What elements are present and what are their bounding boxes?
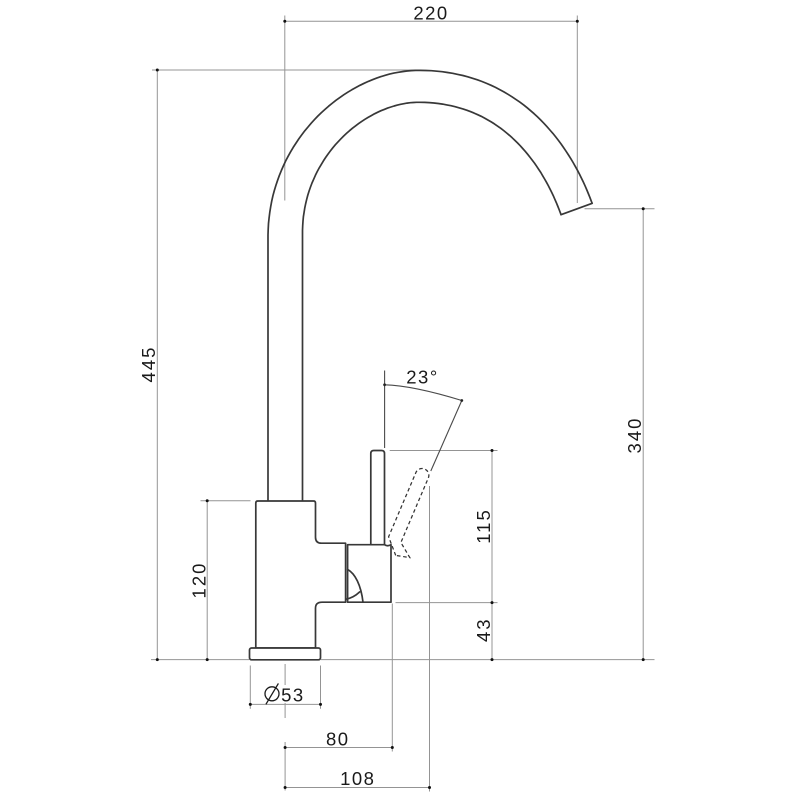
svg-text:445: 445 [138,346,159,383]
svg-text:108: 108 [340,768,375,789]
svg-text:220: 220 [413,3,448,24]
svg-text:23°: 23° [406,366,438,387]
svg-text:43: 43 [473,617,494,642]
svg-text:115: 115 [473,508,494,544]
svg-text:120: 120 [188,562,209,599]
svg-text:80: 80 [326,728,350,749]
svg-text:53: 53 [281,684,305,705]
svg-text:340: 340 [624,417,645,454]
